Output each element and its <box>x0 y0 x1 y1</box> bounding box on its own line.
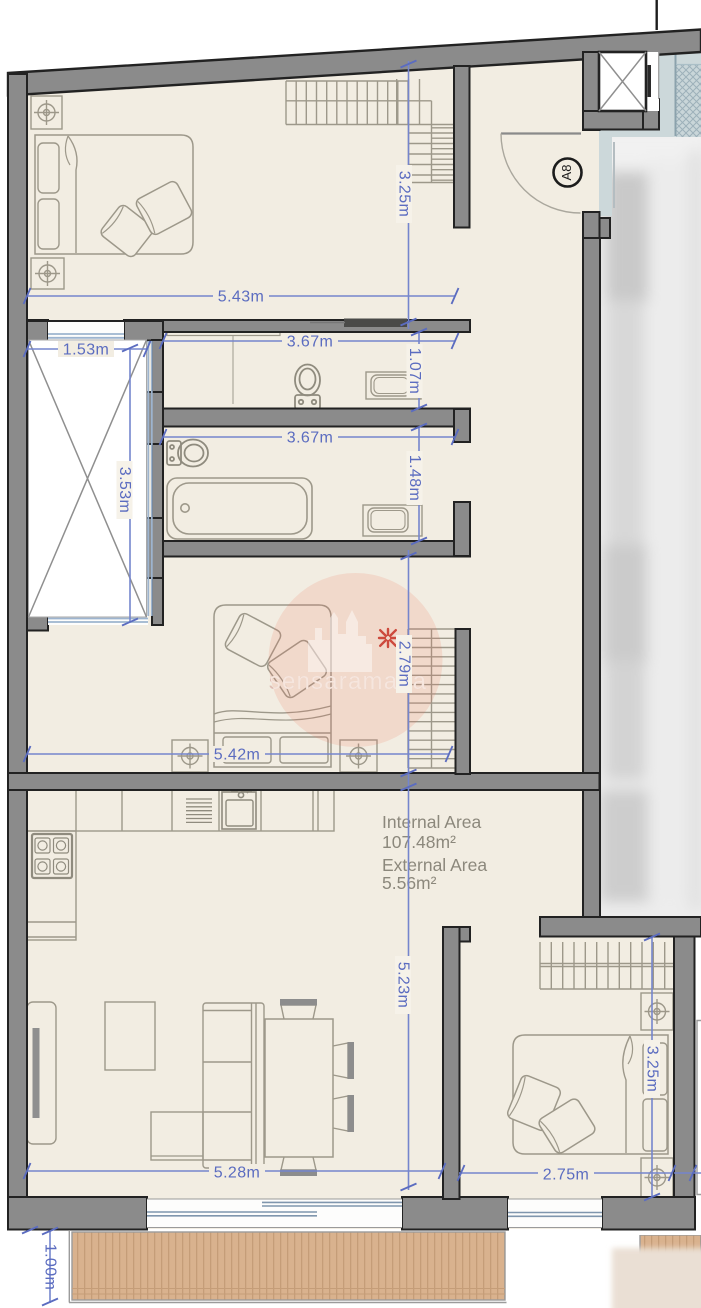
svg-text:107.48m²: 107.48m² <box>382 832 456 852</box>
svg-text:A8: A8 <box>559 165 574 181</box>
svg-text:1.48m: 1.48m <box>406 455 423 501</box>
svg-text:5.43m: 5.43m <box>218 289 264 306</box>
svg-text:3.25m: 3.25m <box>644 1046 661 1092</box>
svg-text:5.42m: 5.42m <box>214 747 260 764</box>
svg-text:2.75m: 2.75m <box>543 1167 589 1184</box>
svg-text:5.23m: 5.23m <box>395 962 412 1008</box>
svg-text:1.07m: 1.07m <box>406 348 423 394</box>
svg-text:3.67m: 3.67m <box>287 430 333 447</box>
svg-text:1.53m: 1.53m <box>63 342 109 359</box>
svg-text:5.56m²: 5.56m² <box>382 873 437 893</box>
svg-text:2.79m: 2.79m <box>396 641 413 687</box>
svg-text:3.67m: 3.67m <box>287 334 333 351</box>
svg-text:3.25m: 3.25m <box>396 171 413 217</box>
svg-text:External Area: External Area <box>382 855 487 875</box>
svg-text:Internal Area: Internal Area <box>382 812 481 832</box>
svg-text:5.28m: 5.28m <box>214 1165 260 1182</box>
svg-text:3.53m: 3.53m <box>116 467 133 513</box>
svg-text:1.00m: 1.00m <box>42 1244 59 1290</box>
